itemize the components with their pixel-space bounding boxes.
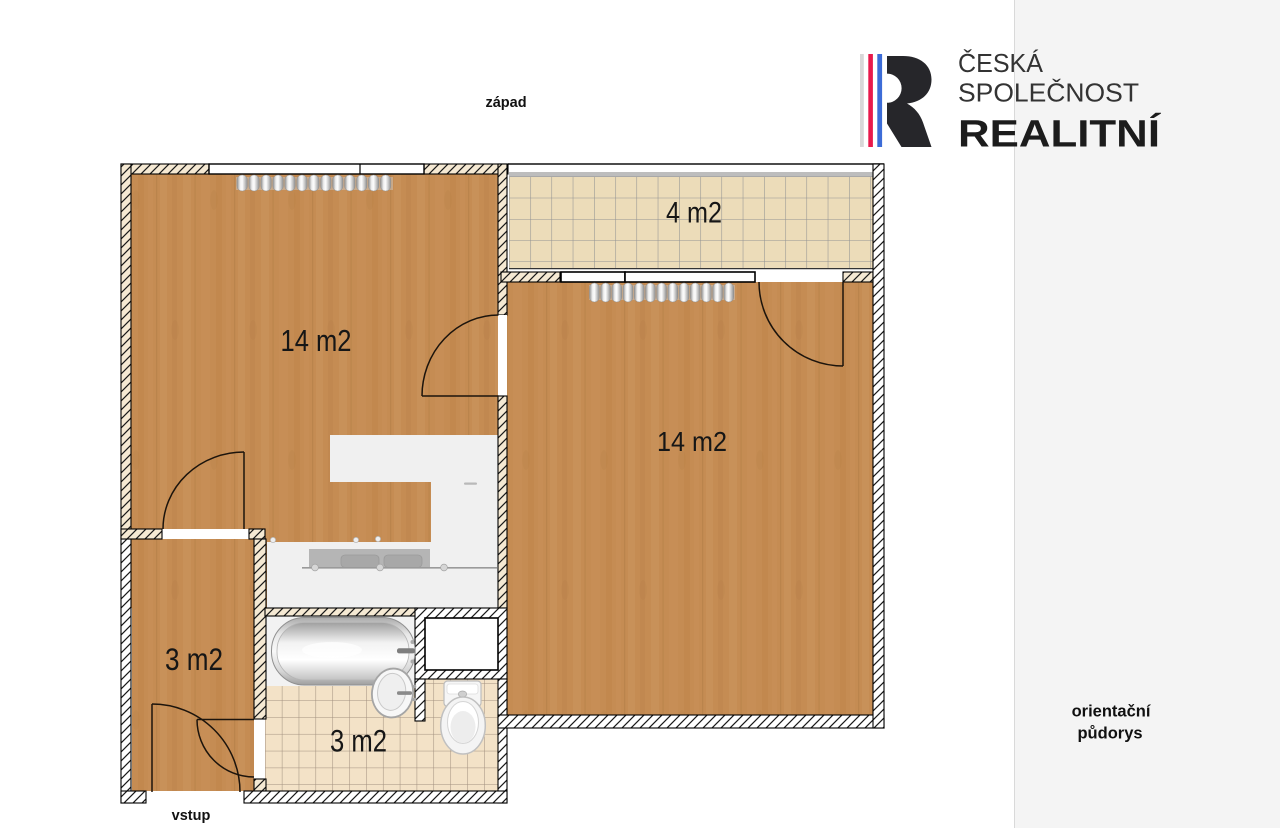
svg-text:SPOLEČNOST: SPOLEČNOST	[958, 78, 1139, 108]
svg-text:západ: západ	[485, 95, 526, 111]
svg-text:půdorys: půdorys	[1077, 725, 1142, 743]
svg-text:14 m2: 14 m2	[657, 426, 727, 457]
svg-text:REALITNÍ: REALITNÍ	[958, 112, 1162, 156]
svg-text:vstup: vstup	[172, 808, 211, 824]
svg-text:14 m2: 14 m2	[281, 323, 352, 358]
svg-text:3 m2: 3 m2	[330, 723, 387, 759]
svg-text:3 m2: 3 m2	[165, 641, 223, 677]
svg-text:ČESKÁ: ČESKÁ	[958, 48, 1044, 78]
svg-text:4 m2: 4 m2	[666, 197, 722, 230]
svg-text:orientační: orientační	[1072, 703, 1152, 721]
